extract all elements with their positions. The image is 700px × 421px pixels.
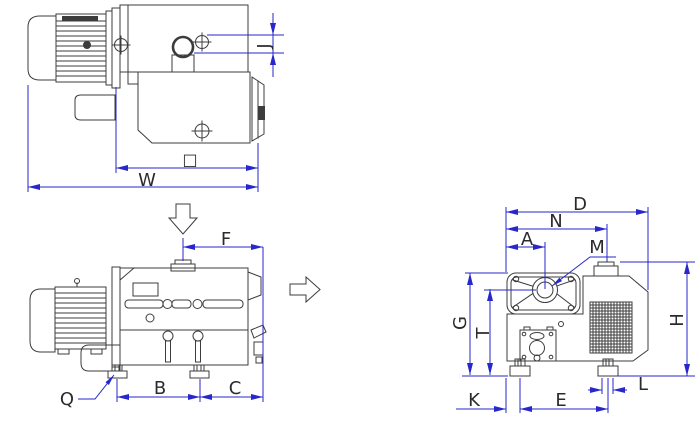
dim-label-h: H: [667, 313, 688, 327]
dim-label-f: F: [221, 229, 231, 250]
dim-label-k: K: [468, 390, 481, 411]
technical-drawing-page: □ W J F B C Q D N A M G T H K E L: [0, 0, 700, 421]
drawing-background: [0, 0, 700, 421]
dim-label-w: W: [138, 170, 156, 191]
dim-label-g: G: [450, 316, 471, 330]
pump-dimension-drawing: □ W J F B C Q D N A M G T H K E L: [0, 0, 700, 421]
dim-label-n: N: [549, 211, 562, 232]
motor-nameplate-strip: [62, 16, 98, 21]
dim-label-c: C: [229, 378, 242, 399]
dim-label-j: J: [254, 43, 275, 49]
dim-label-q: Q: [60, 389, 74, 410]
dim-label-t: T: [473, 327, 494, 340]
dim-label-box: □: [182, 150, 197, 169]
dim-label-l: L: [638, 374, 648, 395]
dim-label-e: E: [555, 390, 566, 411]
dim-label-a: A: [521, 229, 534, 250]
motor-eyebolt-top: [83, 41, 91, 49]
dim-label-d: D: [573, 194, 587, 215]
dim-label-m: M: [589, 237, 605, 258]
dim-label-b: B: [154, 378, 166, 399]
end-cap-port: [258, 106, 265, 120]
